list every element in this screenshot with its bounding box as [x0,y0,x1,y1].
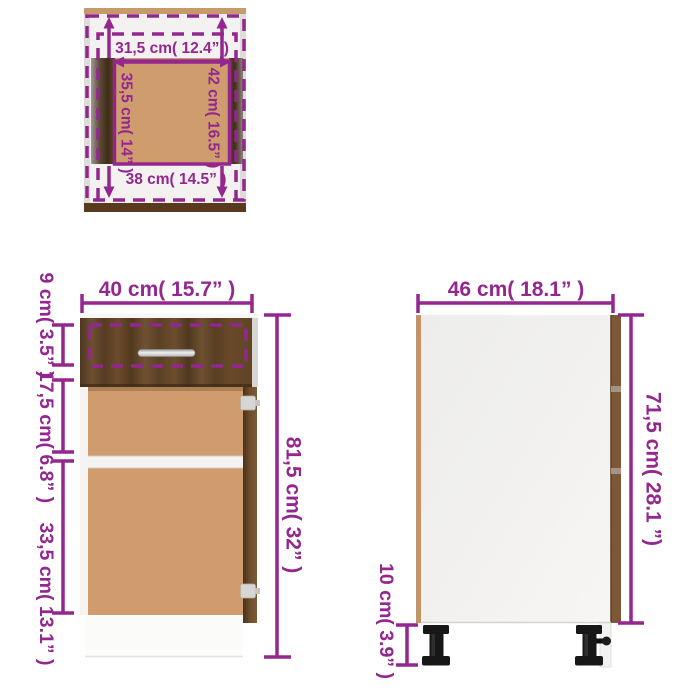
front-view: 40 cm( 15.7” ) 81,5 cm( 32” ) [35,272,305,665]
front-left-edge [80,387,88,615]
top-view-front-edge [84,203,246,212]
dim-label-inner-depth: 35,5 cm( 14” ) [118,73,135,174]
dim-label-lower-height: 33,5 cm( 13.1” ) [35,522,57,665]
dim-label-upper-height: 17,5 cm( 6.8” ) [35,371,57,503]
product-dimension-image: 31,5 cm( 12.4” ) 35,5 cm( 14” ) 42 cm( 1… [0,0,700,700]
door-hinge [241,584,261,598]
side-back-edge [416,315,421,623]
open-compartment-back [88,387,243,615]
hinge-mark [611,468,621,474]
side-view: 46 cm( 18.1” ) 71,5 cm( [375,278,665,679]
leg-knob [602,637,611,646]
dim-label-depth: 46 cm( 18.1” ) [448,278,585,301]
front-right-edge-top [252,318,258,387]
side-panel [421,315,611,623]
drawer-handle [138,350,195,357]
compartment-top-shadow [88,387,243,391]
dim-label-width: 40 cm( 15.7” ) [99,278,236,301]
dim-label-leg-height: 10 cm( 3.9” ) [375,563,397,679]
dim-label-body-height: 71,5 cm( 28.1 ”) [642,392,665,546]
drawer-shadow [80,384,252,387]
dim-label-drawer-height: 9 cm( 3.5” ) [35,272,57,377]
shelf-front-edge [88,456,243,468]
adjustable-leg [422,625,450,666]
door-hinge [241,396,261,410]
dim-label-bottom-width: 38 cm( 14.5” ) [126,171,227,188]
top-view-left-wall [91,58,115,164]
dim-label-total-height: 81,5 cm( 32” ) [282,437,305,574]
plinth-panel [85,615,243,657]
front-top-edge [80,314,258,318]
top-view: 31,5 cm( 12.4” ) 35,5 cm( 14” ) 42 cm( 1… [84,8,246,212]
diagram-canvas: 31,5 cm( 12.4” ) 35,5 cm( 14” ) 42 cm( 1… [0,0,700,700]
dim-label-inner-width: 31,5 cm( 12.4” ) [115,40,229,57]
dim-label-total-depth: 42 cm( 16.5” ) [205,68,222,169]
top-view-back-edge [84,8,246,14]
hinge-mark [611,386,621,392]
